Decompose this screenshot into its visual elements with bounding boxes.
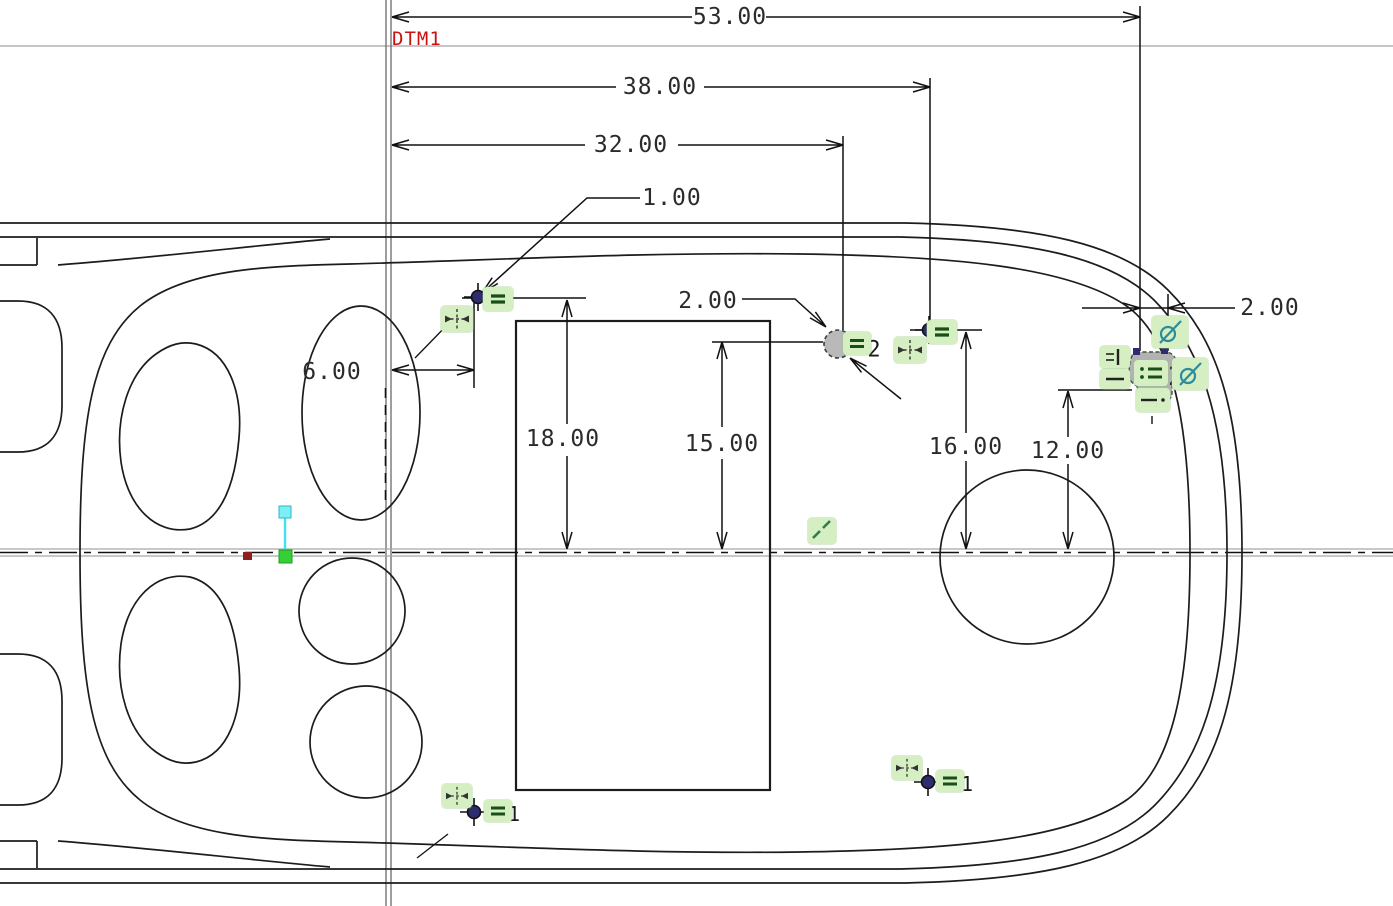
dimension-12[interactable]: 12.00 [1031,438,1105,464]
align-point-icon [443,785,471,807]
parallel-constraint-badge[interactable] [808,518,836,544]
horizontal-constraint-badge[interactable] [1100,369,1130,389]
dimension-18[interactable]: 18.00 [526,426,600,452]
tangent-constraint-icon [1174,360,1206,388]
vertex-dot [1133,348,1140,355]
tangent-constraint-icon [1154,318,1186,346]
align-constraint-badge[interactable] [894,337,926,363]
equal-constraint-icon [484,288,512,310]
cutout-teardrop-bottom [120,576,240,763]
centerline-dash-icon [1137,389,1169,411]
reference-point-red [243,552,252,560]
dimension-1[interactable]: 1.00 [642,185,701,211]
cutout-roundrect-bottom-left [0,654,62,805]
equal-constraint-badge[interactable] [936,770,964,792]
vertical-constraint-icon [1101,347,1129,367]
cutout-circle-bottom [310,686,422,798]
datum-plane-label[interactable]: DTM1 [392,28,442,50]
equal-constraint-badge[interactable] [484,800,512,822]
vertex-dot [1161,347,1168,354]
equal-constraint-icon [937,771,963,791]
align-constraint-badge[interactable] [441,306,473,332]
equal-constraint-badge[interactable] [483,287,513,311]
align-point-icon [895,338,925,362]
equal-constraint-badge[interactable] [843,332,871,355]
tangent-constraint-badge[interactable] [1152,316,1188,348]
centerline-dash-badge[interactable] [1136,388,1170,412]
cutout-roundrect-top-left [0,301,62,452]
csys-axis-handle [279,506,291,518]
dimension-38[interactable]: 38.00 [623,74,697,100]
left-wedge-bottom [0,841,330,868]
csys-marker[interactable] [243,506,292,563]
dimension-15[interactable]: 15.00 [685,431,759,457]
cutout-ellipse [302,306,420,520]
tangent-constraint-badge[interactable] [1172,358,1208,390]
coincident-equal-icon [1135,361,1167,385]
cutout-circle-mid [299,558,405,664]
sketch-points[interactable] [460,283,943,826]
equal-constraint-icon [844,333,870,354]
left-wedge-top [0,238,330,265]
coincident-equal-badge[interactable] [1134,360,1168,386]
parallel-constraint-icon [809,519,835,543]
horizontal-constraint-icon [1101,370,1129,388]
align-point-icon [893,757,921,779]
dimension-6[interactable]: 6.00 [302,359,361,385]
dimension-2-diameter[interactable]: 2.00 [678,288,737,314]
equal-constraint-icon [928,321,956,343]
dimension-32[interactable]: 32.00 [594,132,668,158]
dimension-16[interactable]: 16.00 [929,434,1003,460]
align-constraint-badge[interactable] [442,784,472,808]
vertical-constraint-badge[interactable] [1100,346,1130,368]
equal-constraint-icon [485,801,511,821]
align-point-icon [442,307,472,331]
csys-origin-handle [279,550,292,563]
dimension-2-gap[interactable]: 2.00 [1240,295,1299,321]
equal-constraint-badge[interactable] [927,320,957,344]
sketcher-viewport[interactable]: DTM1 53.00 38.00 32.00 1.00 2.00 2.00 6.… [0,0,1393,906]
dimension-lines[interactable] [392,6,1235,858]
align-constraint-badge[interactable] [892,756,922,780]
cutout-teardrop-top [120,343,240,530]
dimension-53[interactable]: 53.00 [693,4,767,30]
